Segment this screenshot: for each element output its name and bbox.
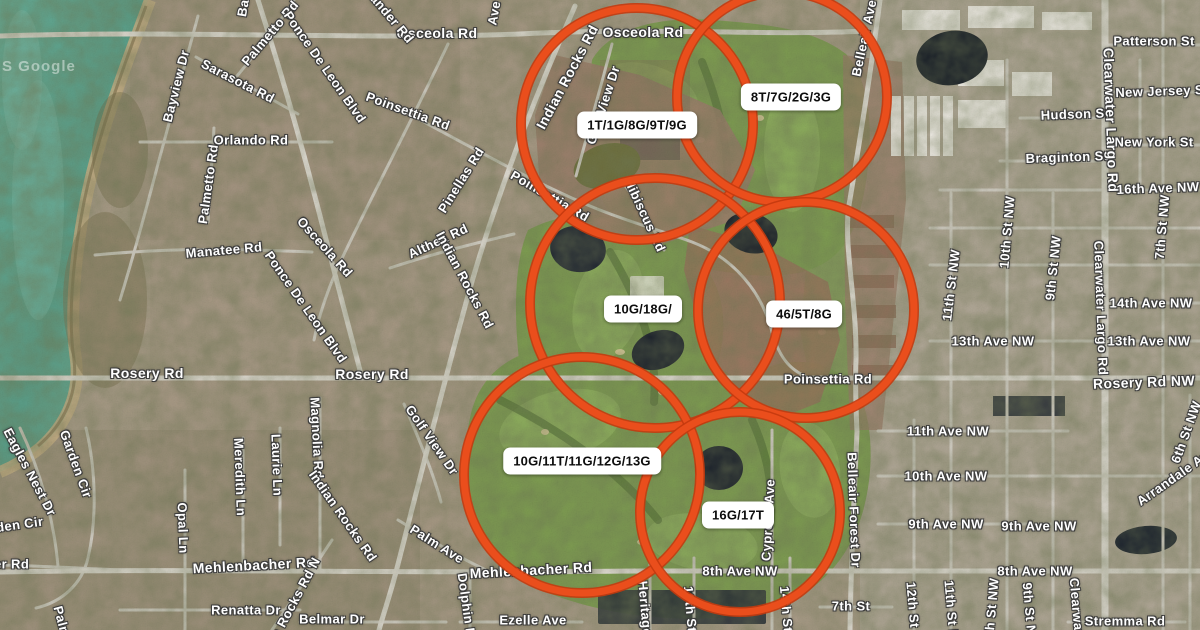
zone-label[interactable]: 46/5T/8G	[766, 301, 842, 328]
zone-annotations: 1T/1G/8G/9T/9G8T/7G/2G/3G10G/18G/46/5T/8…	[0, 0, 1200, 630]
zone-label[interactable]: 10G/18G/	[604, 296, 682, 323]
zone-label[interactable]: 16G/17T	[702, 502, 774, 529]
zone-label[interactable]: 1T/1G/8G/9T/9G	[577, 112, 697, 139]
zone-label[interactable]: 8T/7G/2G/3G	[741, 84, 841, 111]
satellite-map[interactable]: Osceola RdOsceola RdBaAveOleander RdPalm…	[0, 0, 1200, 630]
zone-label[interactable]: 10G/11T/11G/12G/13G	[503, 448, 661, 475]
